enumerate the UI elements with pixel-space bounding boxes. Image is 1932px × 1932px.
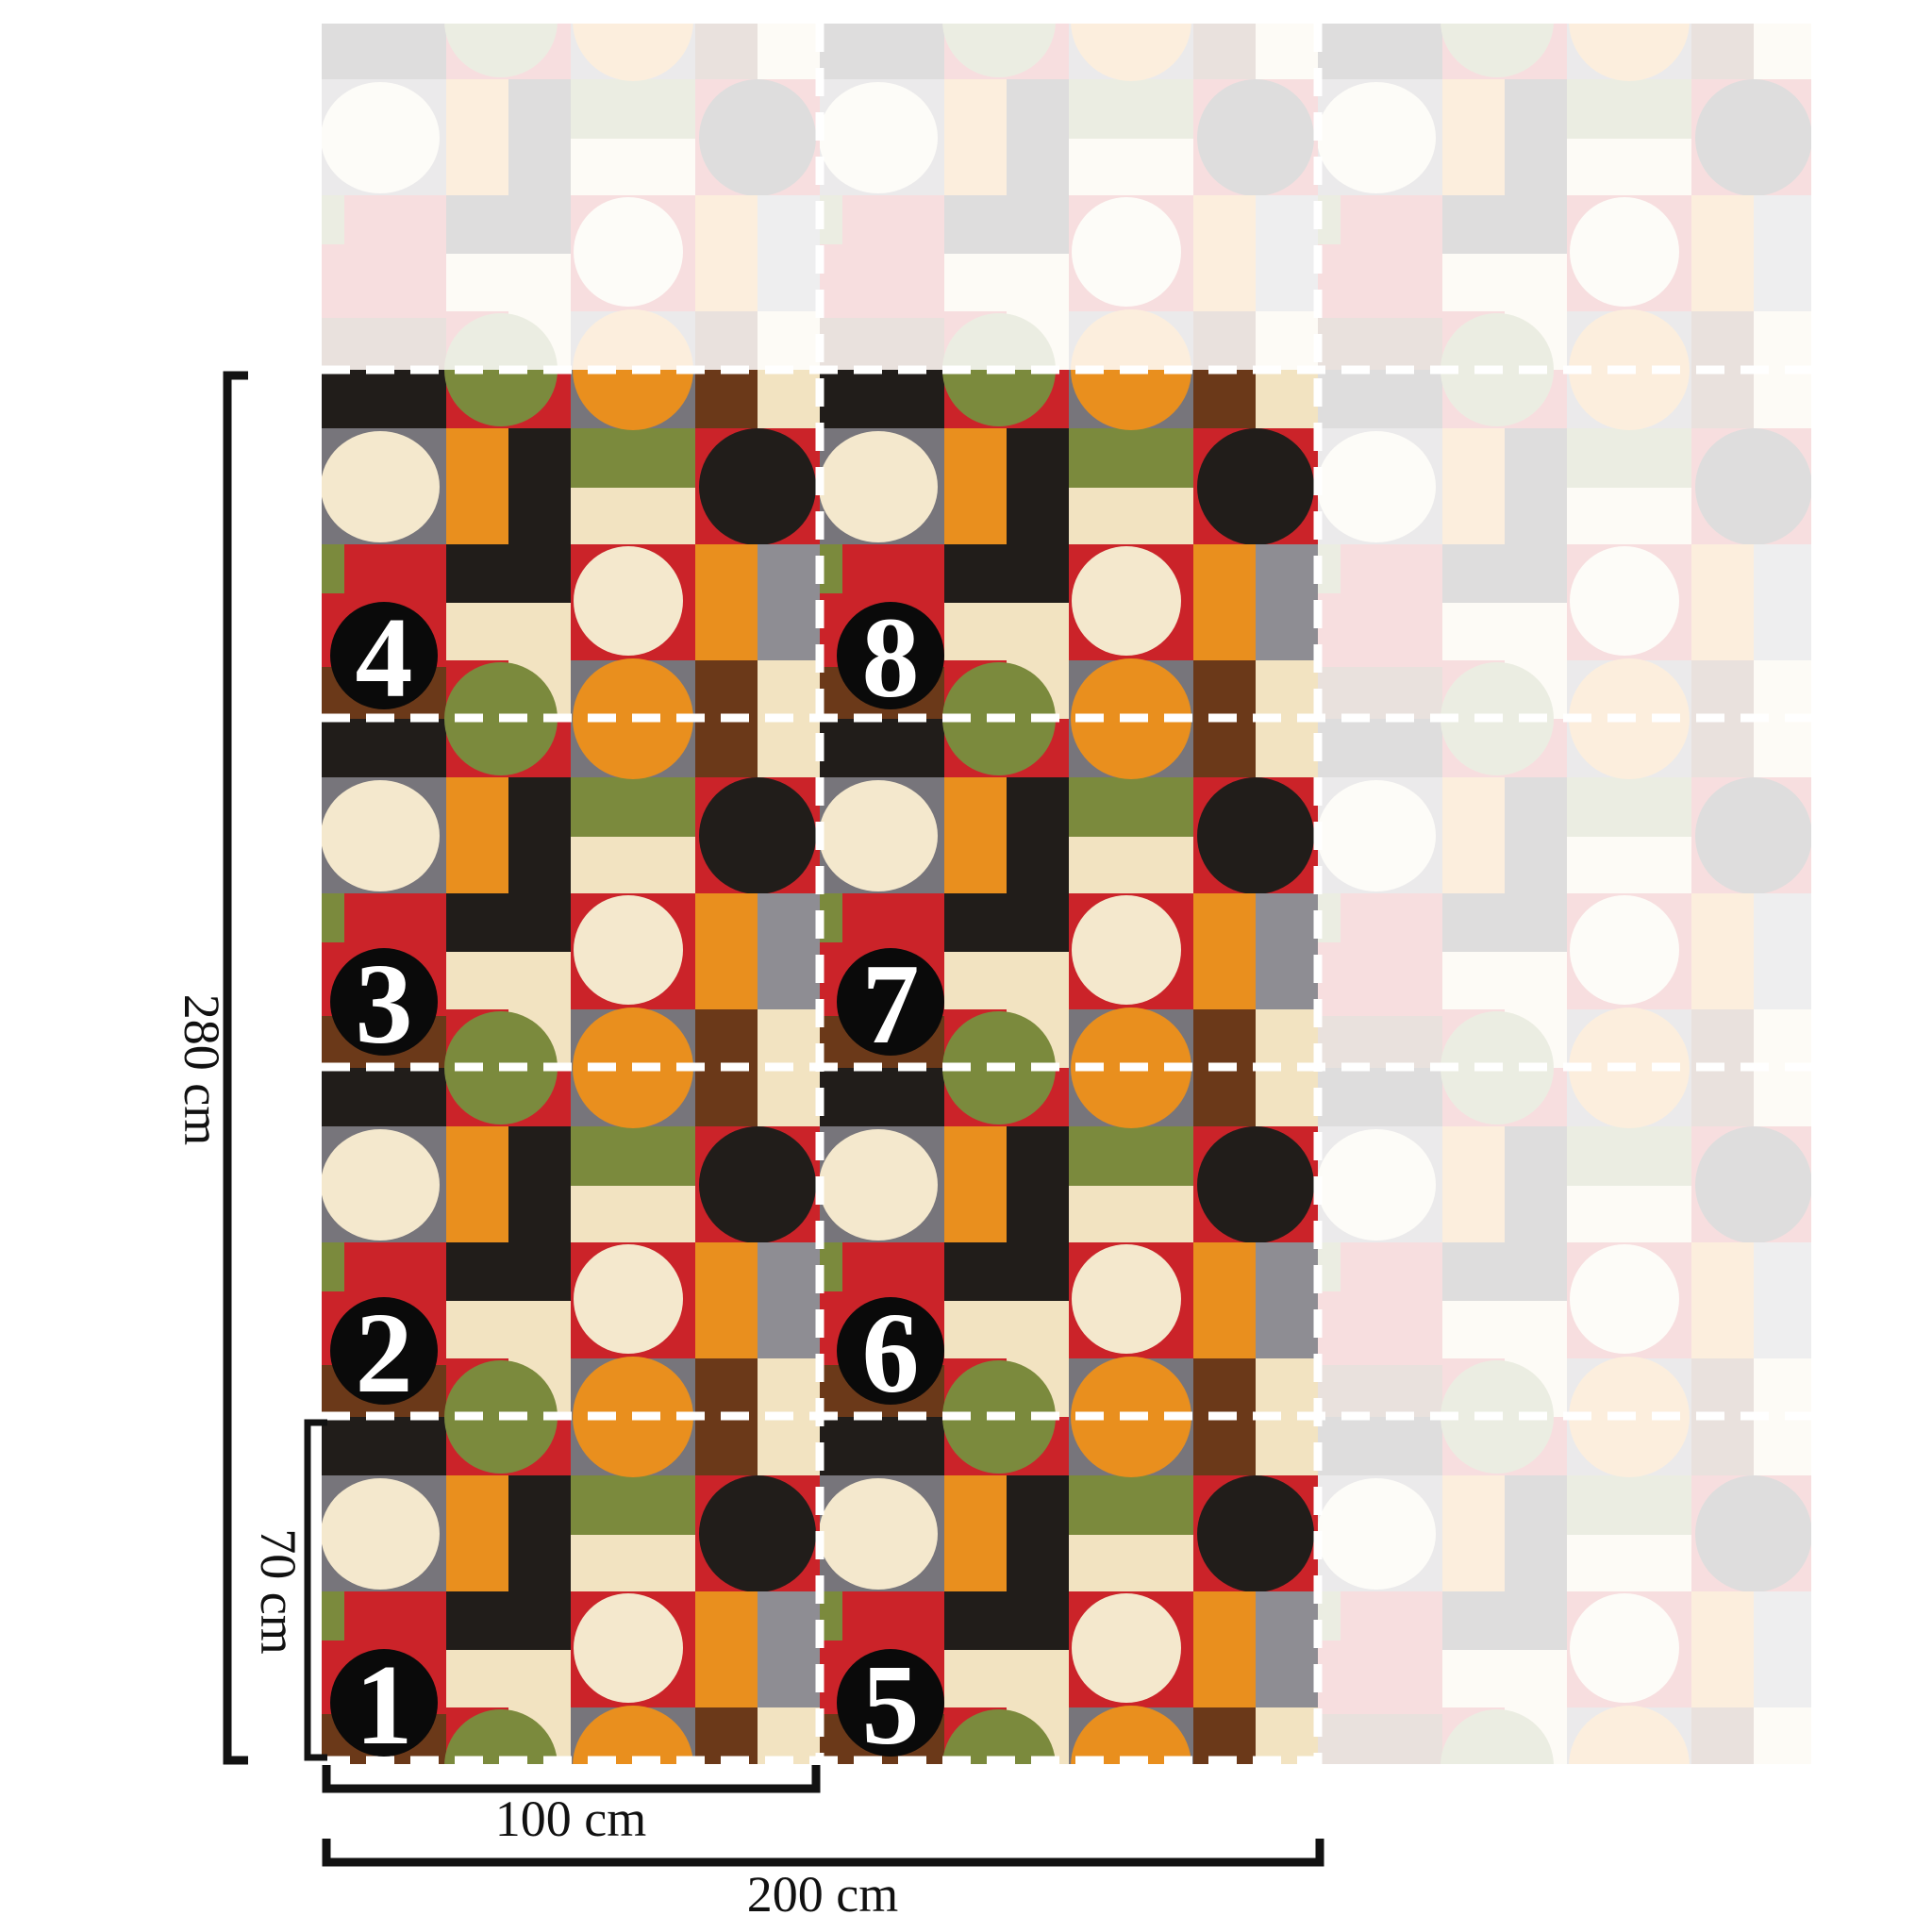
- panel-number-7: 7: [862, 941, 920, 1068]
- wallpaper-layout-diagram: 280 cm 70 cm 100 cm 200 cm 1 2 3 4 5 6: [0, 0, 1932, 1932]
- panel-number-2: 2: [356, 1290, 413, 1417]
- panel-number-6: 6: [862, 1290, 920, 1417]
- panel-number-4: 4: [356, 594, 413, 722]
- diagram-svg: 280 cm 70 cm 100 cm 200 cm 1 2 3 4 5 6: [0, 0, 1932, 1932]
- panel-number-5: 5: [862, 1641, 920, 1769]
- panel-number-8: 8: [862, 594, 920, 722]
- total-width-label: 200 cm: [747, 1866, 898, 1923]
- panel-height-label: 70 cm: [250, 1528, 307, 1654]
- panel-number-1: 1: [356, 1641, 413, 1769]
- total-height-label: 280 cm: [174, 994, 230, 1145]
- panel-number-3: 3: [356, 941, 413, 1068]
- panel-width-label: 100 cm: [495, 1790, 646, 1847]
